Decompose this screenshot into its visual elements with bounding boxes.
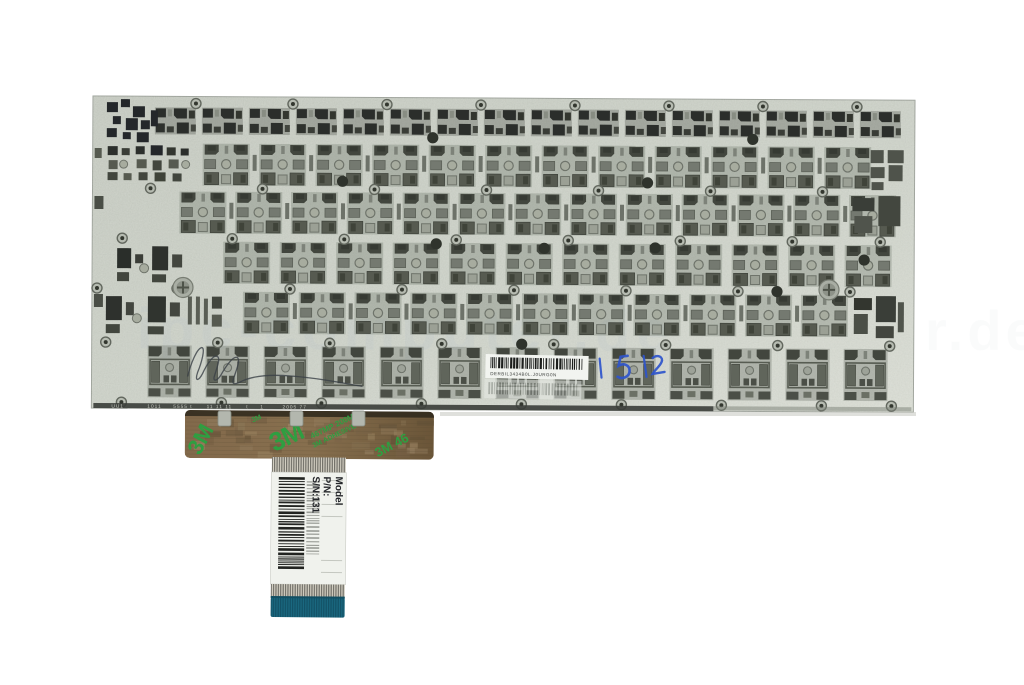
svg-text:Model: Model: [333, 477, 344, 506]
svg-text:P/N:: P/N:: [321, 476, 332, 496]
svg-text:S/N:131: S/N:131: [309, 476, 320, 513]
svg-text:UU1 1011 5555 t: UU1 1011 5555 t 11 11 11 t 1 2005 77: [111, 404, 307, 411]
svg-text:r.de: r.de: [925, 299, 1024, 362]
